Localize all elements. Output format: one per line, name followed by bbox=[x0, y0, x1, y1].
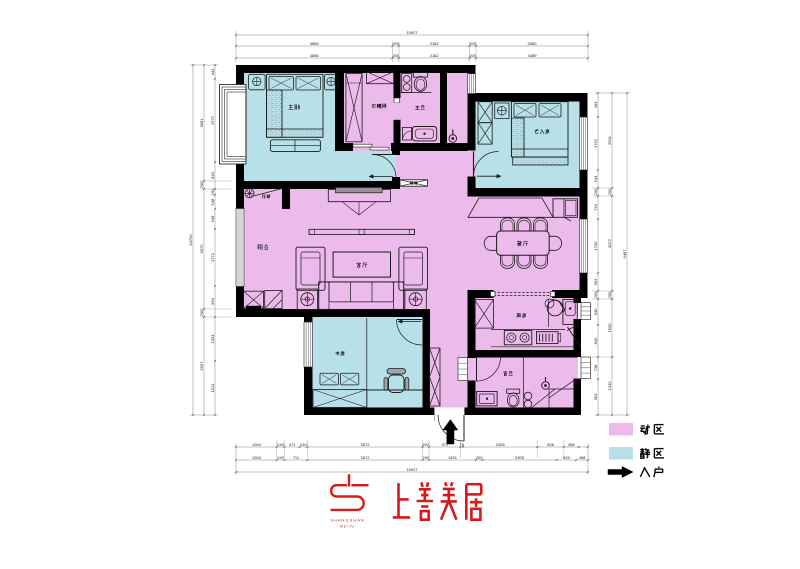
svg-text:471: 471 bbox=[289, 442, 296, 447]
svg-text:2305: 2305 bbox=[515, 455, 525, 460]
svg-text:240: 240 bbox=[277, 442, 284, 447]
svg-text:734: 734 bbox=[593, 203, 598, 210]
svg-text:2577: 2577 bbox=[210, 115, 215, 125]
svg-text:648: 648 bbox=[210, 215, 215, 222]
svg-text:M E I J U: M E I J U bbox=[340, 525, 354, 529]
svg-text:2182: 2182 bbox=[430, 53, 440, 58]
svg-text:1600: 1600 bbox=[607, 323, 612, 333]
svg-text:200: 200 bbox=[607, 291, 612, 298]
svg-text:826: 826 bbox=[563, 455, 570, 460]
svg-text:971: 971 bbox=[441, 442, 448, 447]
svg-text:1772: 1772 bbox=[210, 252, 215, 262]
svg-text:3572: 3572 bbox=[361, 442, 371, 447]
svg-text:640: 640 bbox=[593, 308, 598, 315]
svg-text:458: 458 bbox=[579, 455, 586, 460]
svg-text:200: 200 bbox=[607, 188, 612, 195]
svg-text:960: 960 bbox=[210, 297, 215, 304]
svg-text:458: 458 bbox=[568, 442, 575, 447]
svg-text:1264: 1264 bbox=[252, 442, 262, 447]
svg-text:443: 443 bbox=[593, 101, 598, 108]
svg-text:4856: 4856 bbox=[310, 53, 320, 58]
svg-text:1755: 1755 bbox=[593, 241, 598, 251]
svg-text:240: 240 bbox=[277, 455, 284, 460]
svg-text:2967: 2967 bbox=[199, 361, 204, 371]
svg-text:200: 200 bbox=[593, 188, 598, 195]
svg-text:3072: 3072 bbox=[607, 238, 612, 248]
svg-text:711: 711 bbox=[293, 455, 300, 460]
svg-text:303: 303 bbox=[593, 393, 598, 400]
svg-text:826: 826 bbox=[547, 442, 554, 447]
svg-text:2305: 2305 bbox=[496, 442, 506, 447]
svg-text:840: 840 bbox=[593, 337, 598, 344]
svg-text:200: 200 bbox=[199, 181, 204, 188]
svg-text:200: 200 bbox=[593, 291, 598, 298]
svg-text:10700: 10700 bbox=[188, 234, 193, 246]
svg-text:1311: 1311 bbox=[210, 383, 215, 392]
svg-text:2991: 2991 bbox=[607, 135, 612, 145]
svg-text:200: 200 bbox=[392, 41, 399, 46]
svg-text:1354: 1354 bbox=[210, 334, 215, 344]
svg-text:738: 738 bbox=[593, 364, 598, 371]
svg-text:200: 200 bbox=[469, 53, 476, 58]
svg-text:3489: 3489 bbox=[528, 41, 538, 46]
svg-text:10927: 10927 bbox=[406, 467, 418, 472]
svg-text:10927: 10927 bbox=[406, 30, 418, 35]
svg-text:2182: 2182 bbox=[430, 41, 440, 46]
svg-text:4856: 4856 bbox=[310, 41, 320, 46]
svg-text:1330: 1330 bbox=[607, 381, 612, 391]
svg-text:3572: 3572 bbox=[361, 455, 371, 460]
svg-text:548: 548 bbox=[210, 198, 215, 205]
svg-text:1752: 1752 bbox=[593, 138, 598, 148]
svg-text:202: 202 bbox=[423, 442, 430, 447]
svg-text:840: 840 bbox=[210, 171, 215, 178]
svg-text:3972: 3972 bbox=[199, 244, 204, 254]
svg-text:200: 200 bbox=[469, 41, 476, 46]
svg-text:444: 444 bbox=[210, 68, 215, 75]
svg-text:200: 200 bbox=[392, 53, 399, 58]
svg-text:S H A N G S H A N: S H A N G S H A N bbox=[330, 518, 363, 523]
svg-text:393: 393 bbox=[593, 278, 598, 285]
svg-text:9487: 9487 bbox=[622, 249, 627, 259]
svg-text:3489: 3489 bbox=[528, 53, 538, 58]
svg-text:200: 200 bbox=[423, 455, 430, 460]
svg-text:200: 200 bbox=[476, 455, 483, 460]
svg-text:1451: 1451 bbox=[448, 455, 458, 460]
svg-text:3581: 3581 bbox=[199, 118, 204, 128]
svg-text:544: 544 bbox=[593, 175, 598, 182]
svg-text:200: 200 bbox=[199, 309, 204, 316]
svg-text:240: 240 bbox=[300, 442, 307, 447]
svg-text:1264: 1264 bbox=[252, 455, 262, 460]
